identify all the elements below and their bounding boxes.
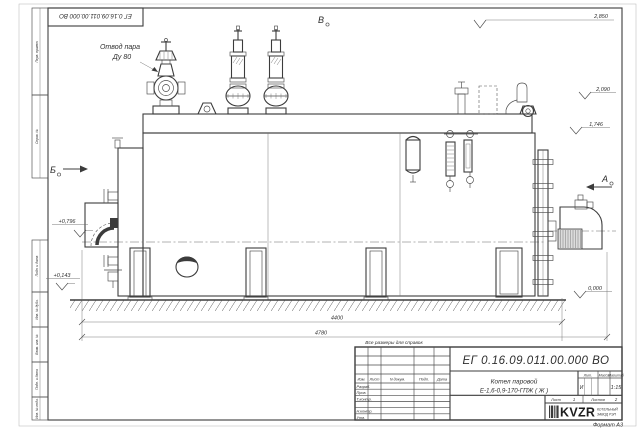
row-nkontr: Н.контр.	[357, 410, 373, 414]
steam-outlet-callout: Отвод пара Ду 80	[100, 43, 158, 72]
sheet-value: 1	[573, 397, 575, 402]
elevation-top: 2,850	[593, 14, 609, 20]
doc-number: ЕГ 0.16.09.011.00.000 ВО	[463, 355, 610, 367]
lit-value: И	[580, 385, 584, 391]
col-podp: Подп.	[419, 378, 429, 382]
col-izm: Изм.	[357, 378, 365, 382]
row-utv: Утв.	[357, 416, 366, 420]
lifting-lug	[198, 103, 216, 114]
boiler-general-view-drawing: ЕГ 0.16.09.011.00.000 ВО Перв. примен. С…	[0, 0, 644, 430]
company-logo: KVZR КОТЕЛЬНЫЙ ЗАВОД РЭП	[549, 406, 618, 420]
safety-valve	[264, 26, 288, 114]
company-line2: ЗАВОД РЭП	[597, 413, 617, 417]
reference-note: Все размеры для справок	[365, 340, 423, 346]
margin-cell-label: Инв. № дубл.	[35, 299, 39, 319]
sheets-value: 2	[614, 397, 618, 402]
steam-outlet-valve	[147, 39, 185, 115]
elevation-marks: 2,850 2,090 1,746 +0,796 +0,143 0,000	[46, 14, 616, 298]
title-block: Изм. Лист N докум. Подп. Дата Разраб. Пр…	[355, 347, 624, 429]
col-list: Лист	[369, 378, 380, 382]
boiler-body	[82, 114, 545, 296]
water-level-gauge	[406, 131, 478, 193]
margin-columns: Перв. примен. Справ. № Подп. и дата Инв.…	[32, 8, 48, 420]
format-label: Формат А3	[593, 423, 624, 429]
logo-text: KVZR	[560, 406, 595, 420]
rear-flange	[533, 150, 553, 296]
col-ndocum: N докум.	[390, 378, 405, 382]
elevation-ground: 0,000	[588, 286, 603, 292]
burner-assembly	[85, 189, 122, 288]
view-labels: Б В А	[50, 15, 613, 191]
row-prov: Пров.	[357, 391, 367, 395]
row-tkontr: Т.контр.	[357, 397, 372, 401]
margin-cell-label: Перв. примен.	[35, 40, 39, 62]
elevation-left-lower: +0,143	[54, 273, 72, 279]
col-data: Дата	[436, 378, 447, 382]
margin-cell-label: Взам. инв. №	[35, 334, 39, 355]
margin-cell-label: Подп. и дата	[35, 369, 39, 390]
product-type: Е-1,6-0,9-170-ГПЖ ( Ж )	[480, 388, 548, 395]
callout-line1: Отвод пара	[100, 43, 140, 51]
safety-valve	[226, 26, 250, 114]
manhole	[176, 256, 198, 277]
sheets-label: Листов	[590, 398, 605, 402]
row-razrab: Разраб.	[357, 385, 371, 389]
view-label-b: Б	[50, 165, 56, 175]
elevation-mid-upper: 2,090	[595, 87, 611, 93]
scale-value: 1:15	[611, 385, 623, 391]
company-line1: КОТЕЛЬНЫЙ	[597, 408, 618, 412]
elevation-mid: 1,746	[589, 122, 604, 128]
scale-header: Масштаб	[608, 374, 624, 378]
dimension-overall-label: 4780	[315, 331, 328, 337]
elevation-left-upper: +0,796	[59, 219, 77, 225]
support-legs	[128, 248, 522, 300]
ground-hatch	[70, 300, 566, 311]
top-doc-number: ЕГ 0.16.09.011.00.000 ВО	[59, 12, 132, 19]
dimension-length-label: 4400	[331, 316, 344, 322]
lit-header: Лит.	[583, 374, 592, 378]
drum-fittings	[455, 82, 527, 114]
callout-line2: Ду 80	[112, 54, 131, 61]
view-label-v: В	[318, 15, 324, 25]
product-name: Котел паровой	[491, 378, 538, 386]
margin-cell-label: Инв. № подл.	[35, 398, 39, 419]
margin-cell-label: Справ. №	[35, 129, 39, 144]
fan-motor-assembly	[548, 195, 616, 249]
margin-cell-label: Подп. и дата	[35, 256, 39, 277]
drawing-sheet: ЕГ 0.16.09.011.00.000 ВО Перв. примен. С…	[0, 0, 644, 430]
sheet-label: Лист	[550, 398, 561, 402]
lifting-lug	[520, 106, 536, 117]
view-label-a: А	[601, 174, 608, 184]
